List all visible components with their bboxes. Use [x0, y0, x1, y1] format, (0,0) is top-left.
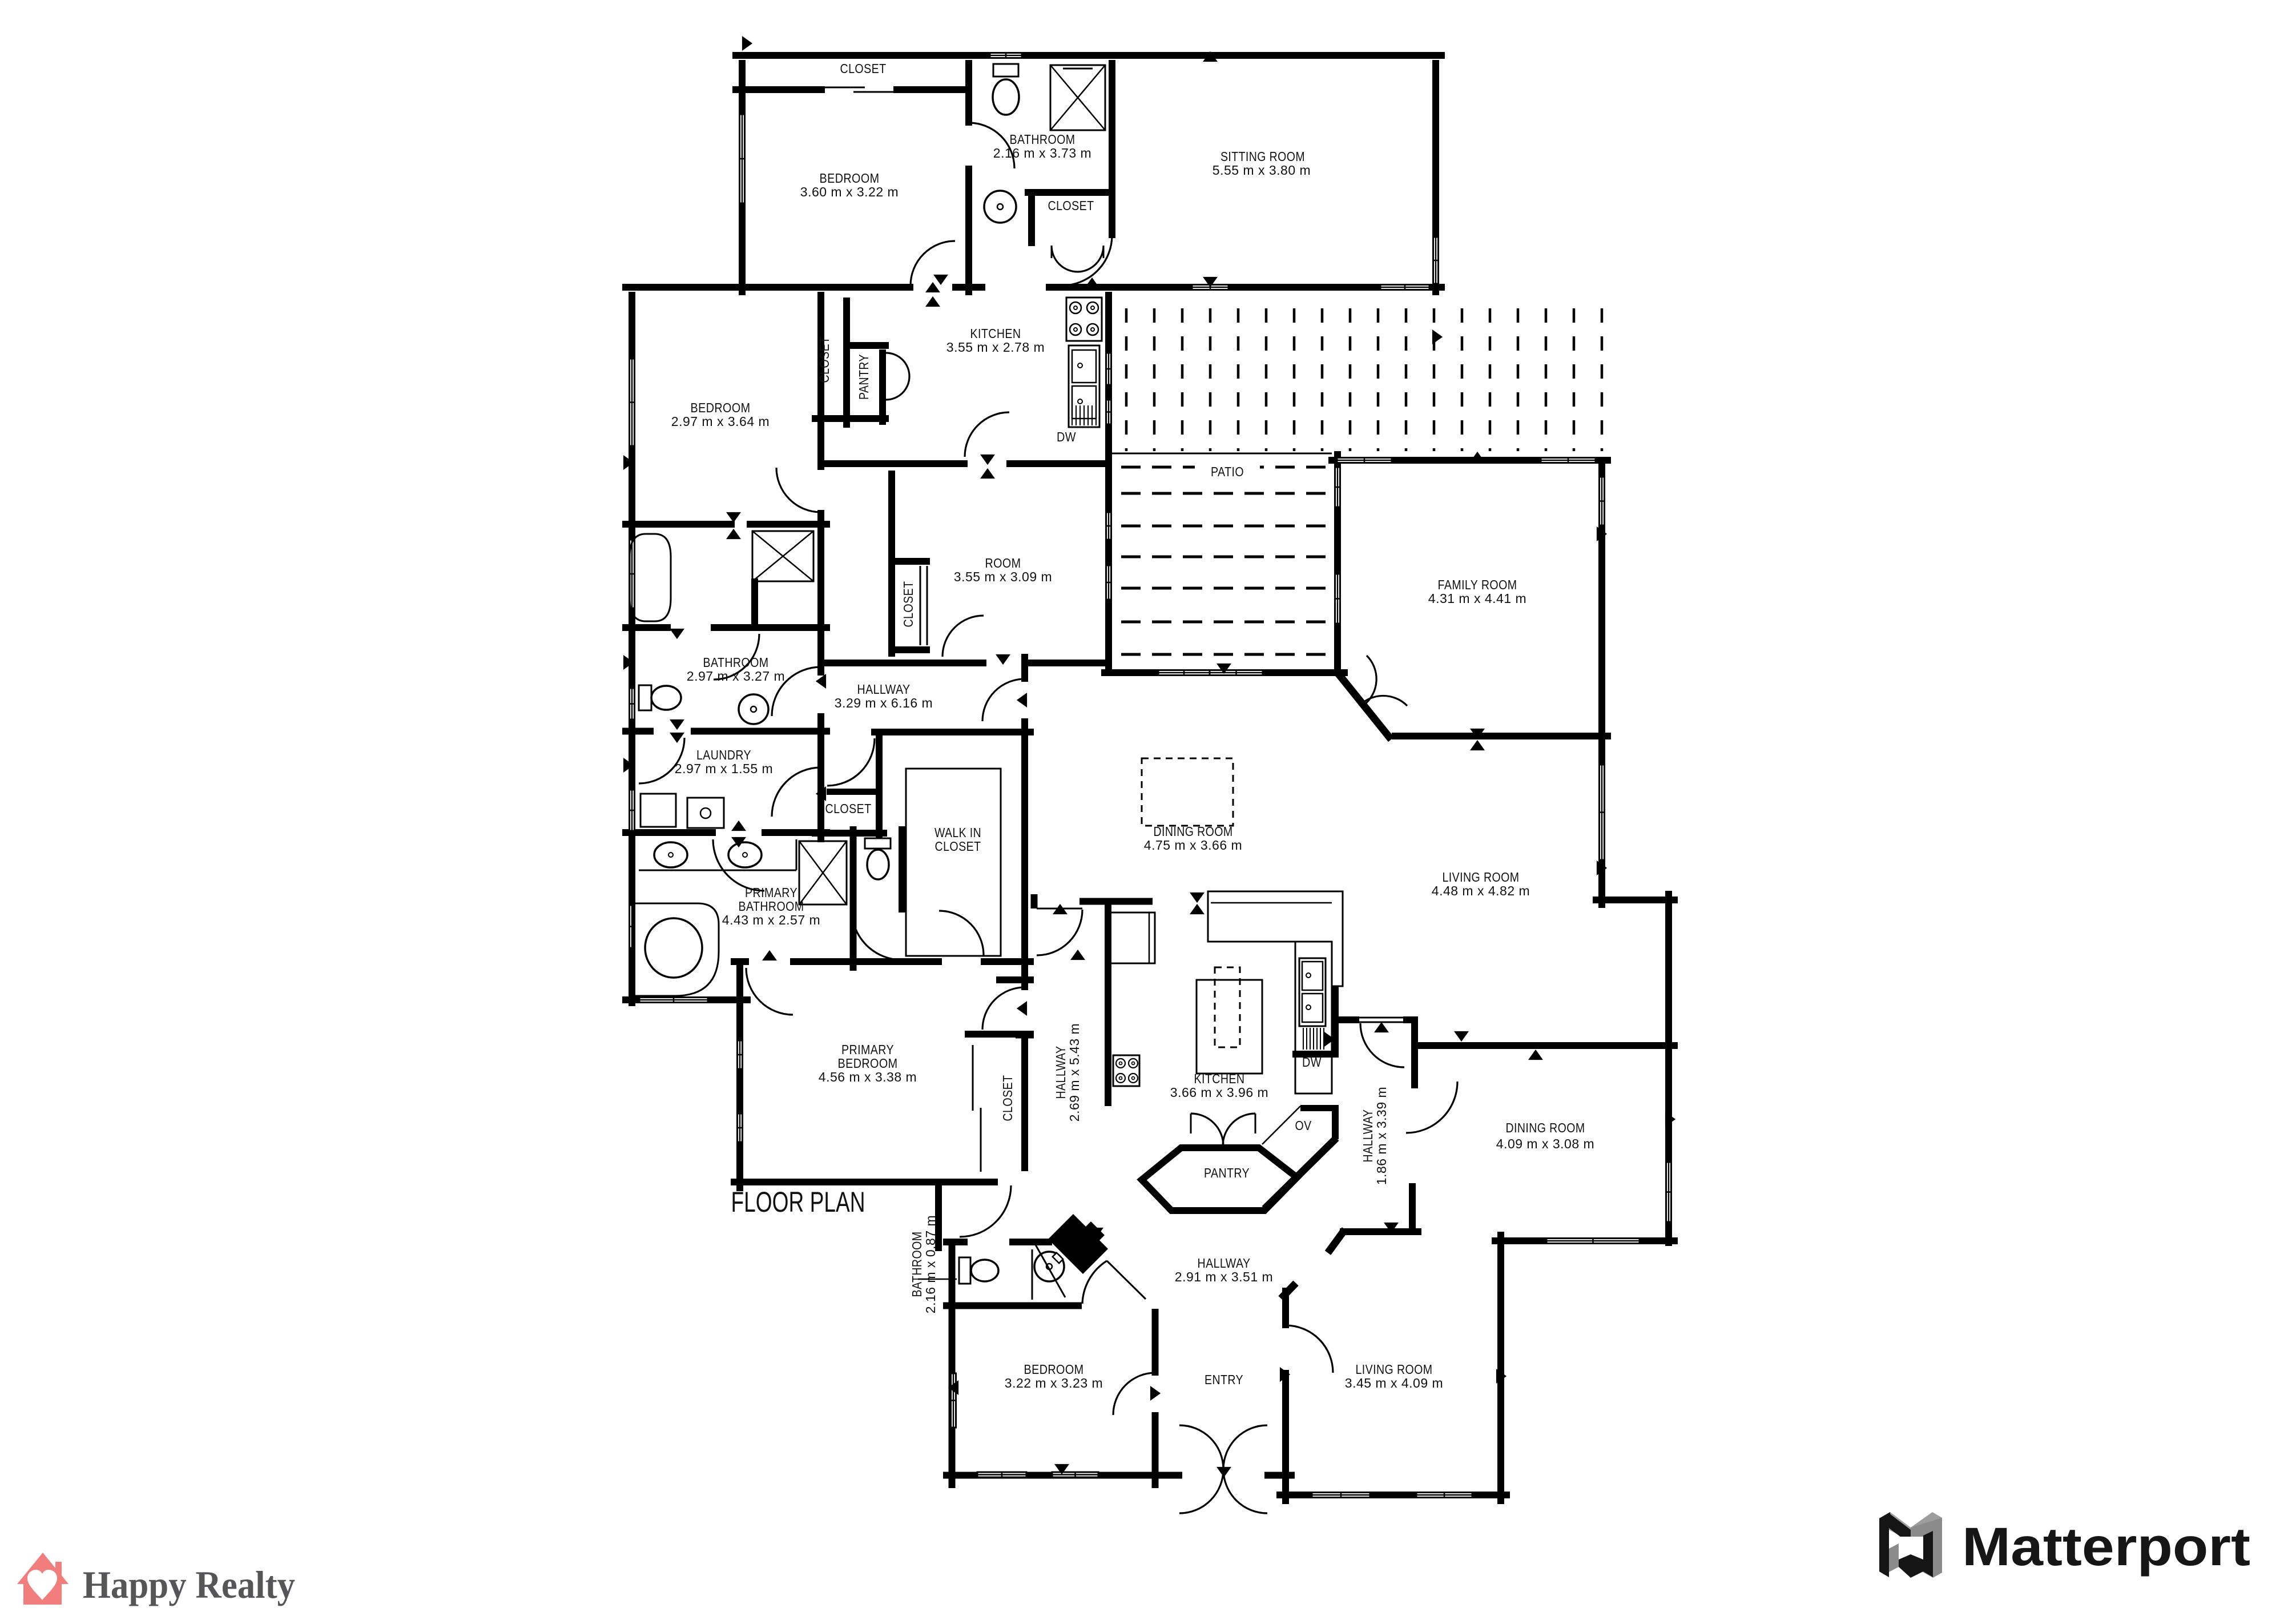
svg-text:3.29 m x 6.16 m: 3.29 m x 6.16 m [835, 696, 933, 710]
svg-text:BEDROOM: BEDROOM [1024, 1362, 1084, 1377]
svg-text:1.86 m x 3.39 m: 1.86 m x 3.39 m [1374, 1087, 1389, 1185]
svg-text:4.56 m x 3.38 m: 4.56 m x 3.38 m [819, 1070, 917, 1084]
svg-text:DINING ROOM: DINING ROOM [1154, 824, 1233, 839]
svg-text:CLOSET: CLOSET [1000, 1075, 1015, 1121]
svg-text:KITCHEN: KITCHEN [970, 326, 1021, 341]
svg-text:BATHROOM: BATHROOM [1010, 132, 1076, 147]
svg-text:CLOSET: CLOSET [817, 337, 832, 383]
svg-text:4.09 m x 3.08 m: 4.09 m x 3.08 m [1496, 1136, 1594, 1151]
svg-text:LIVING ROOM: LIVING ROOM [1443, 870, 1520, 885]
svg-text:PANTRY: PANTRY [1204, 1165, 1250, 1180]
svg-text:3.55 m x 3.09 m: 3.55 m x 3.09 m [954, 569, 1052, 584]
svg-text:HALLWAY: HALLWAY [1053, 1046, 1068, 1099]
svg-text:2.69 m x 5.43 m: 2.69 m x 5.43 m [1067, 1023, 1082, 1121]
svg-text:2.91 m x 3.51 m: 2.91 m x 3.51 m [1175, 1269, 1273, 1284]
svg-text:3.66 m x 3.96 m: 3.66 m x 3.96 m [1170, 1085, 1268, 1100]
svg-text:DW: DW [1302, 1055, 1322, 1070]
svg-text:BATHROOM: BATHROOM [703, 655, 769, 670]
svg-text:CLOSET: CLOSET [935, 839, 981, 854]
svg-text:ENTRY: ENTRY [1205, 1372, 1243, 1387]
svg-text:DW: DW [1057, 429, 1076, 444]
svg-text:WALK IN: WALK IN [934, 825, 981, 840]
svg-text:2.16 m x 0.87 m: 2.16 m x 0.87 m [923, 1215, 938, 1313]
svg-text:CLOSET: CLOSET [1048, 198, 1094, 213]
svg-text:FAMILY ROOM: FAMILY ROOM [1438, 577, 1517, 592]
svg-text:SITTING ROOM: SITTING ROOM [1220, 149, 1305, 164]
svg-text:3.22 m x 3.23 m: 3.22 m x 3.23 m [1005, 1376, 1103, 1390]
svg-text:Matterport: Matterport [1962, 1517, 2250, 1577]
svg-text:OV: OV [1295, 1118, 1312, 1133]
svg-text:BATHROOM: BATHROOM [909, 1232, 924, 1297]
svg-text:BEDROOM: BEDROOM [691, 400, 751, 415]
svg-text:2.16 m x 3.73 m: 2.16 m x 3.73 m [993, 146, 1091, 160]
svg-text:5.55 m x 3.80 m: 5.55 m x 3.80 m [1213, 163, 1311, 178]
svg-text:BEDROOM: BEDROOM [838, 1056, 898, 1071]
svg-text:DINING ROOM: DINING ROOM [1506, 1120, 1585, 1135]
svg-text:BEDROOM: BEDROOM [820, 171, 880, 186]
svg-text:BATHROOM: BATHROOM [739, 899, 804, 914]
svg-text:PRIMARY: PRIMARY [841, 1042, 894, 1057]
svg-text:3.45 m x 4.09 m: 3.45 m x 4.09 m [1345, 1376, 1443, 1390]
svg-text:LIVING ROOM: LIVING ROOM [1356, 1362, 1433, 1377]
svg-text:KITCHEN: KITCHEN [1194, 1071, 1245, 1086]
svg-text:CLOSET: CLOSET [825, 801, 872, 816]
svg-text:ROOM: ROOM [985, 556, 1021, 570]
svg-text:3.55 m x 2.78 m: 3.55 m x 2.78 m [946, 340, 1045, 355]
svg-text:PATIO: PATIO [1211, 464, 1244, 479]
svg-text:HALLWAY: HALLWAY [857, 682, 911, 697]
svg-text:HALLWAY: HALLWAY [1198, 1256, 1251, 1271]
svg-text:CLOSET: CLOSET [840, 61, 887, 76]
svg-text:Happy Realty: Happy Realty [83, 1563, 295, 1606]
svg-text:4.48 m x 4.82 m: 4.48 m x 4.82 m [1432, 883, 1530, 898]
svg-text:4.43 m x 2.57 m: 4.43 m x 2.57 m [722, 913, 820, 927]
svg-text:4.75 m x 3.66 m: 4.75 m x 3.66 m [1144, 838, 1242, 853]
svg-text:2.97 m x 3.27 m: 2.97 m x 3.27 m [687, 669, 785, 684]
svg-text:CLOSET: CLOSET [901, 581, 916, 628]
svg-text:2.97 m x 3.64 m: 2.97 m x 3.64 m [671, 414, 770, 429]
svg-text:LAUNDRY: LAUNDRY [696, 747, 751, 762]
svg-text:3.60 m x 3.22 m: 3.60 m x 3.22 m [800, 184, 899, 199]
svg-text:4.31 m x 4.41 m: 4.31 m x 4.41 m [1428, 591, 1526, 606]
svg-text:PANTRY: PANTRY [856, 354, 871, 400]
svg-text:FLOOR PLAN: FLOOR PLAN [731, 1186, 865, 1218]
svg-text:HALLWAY: HALLWAY [1360, 1110, 1375, 1163]
svg-text:PRIMARY: PRIMARY [745, 885, 797, 900]
svg-text:2.97 m x 1.55 m: 2.97 m x 1.55 m [675, 761, 773, 776]
